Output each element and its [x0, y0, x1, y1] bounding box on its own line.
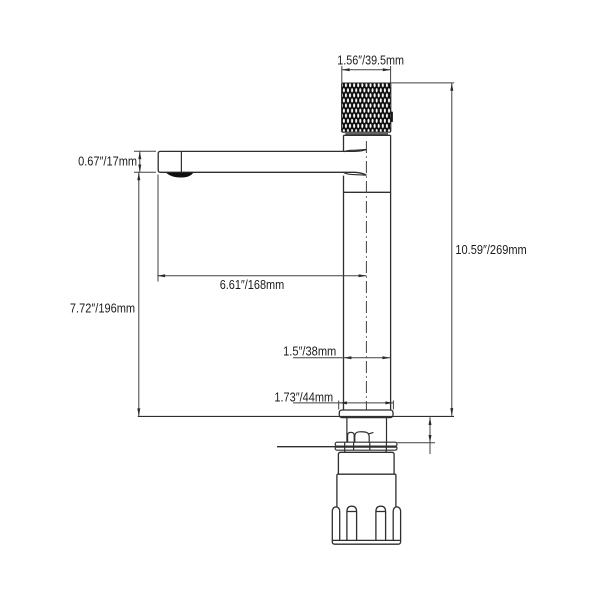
svg-text:1.73″/44mm: 1.73″/44mm [274, 391, 333, 405]
svg-text:10.59″/269mm: 10.59″/269mm [455, 243, 526, 257]
svg-text:7.72″/196mm: 7.72″/196mm [70, 302, 135, 316]
svg-text:1.5″/38mm: 1.5″/38mm [283, 344, 336, 358]
svg-text:0.67″/17mm: 0.67″/17mm [78, 154, 137, 168]
svg-text:6.61″/168mm: 6.61″/168mm [220, 278, 285, 292]
svg-text:1.56″/39.5mm: 1.56″/39.5mm [337, 54, 404, 68]
